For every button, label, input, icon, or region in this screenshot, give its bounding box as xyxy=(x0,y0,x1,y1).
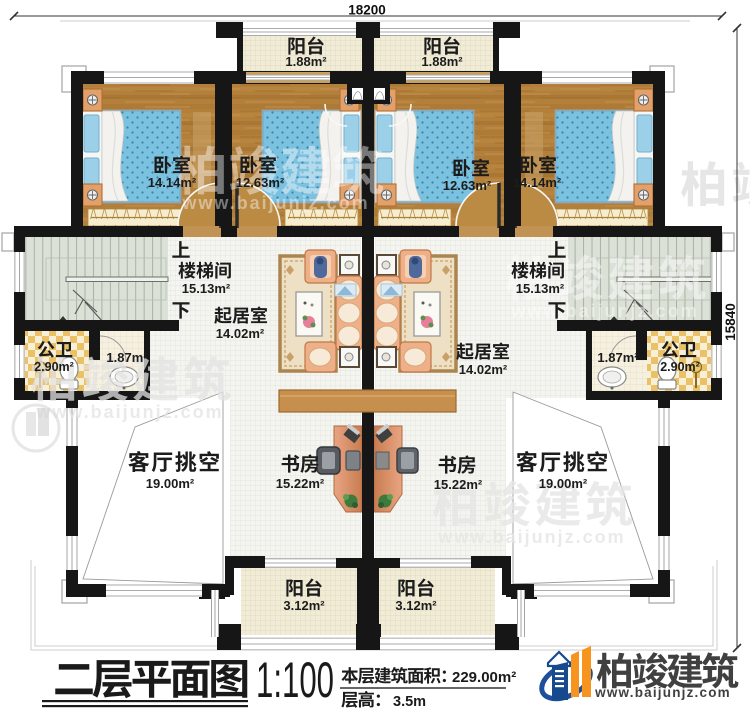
svg-text:1.87m²: 1.87m² xyxy=(106,350,148,365)
svg-text:14.02m²: 14.02m² xyxy=(459,362,508,377)
svg-text:12.63m²: 12.63m² xyxy=(236,175,285,190)
svg-text:3.5m: 3.5m xyxy=(393,694,426,710)
svg-text:1.88m²: 1.88m² xyxy=(285,54,327,69)
svg-text:www.baijunjz.com: www.baijunjz.com xyxy=(510,301,698,321)
svg-text:www.baijunjz.com: www.baijunjz.com xyxy=(594,685,731,700)
svg-text:14.02m²: 14.02m² xyxy=(216,326,265,341)
svg-text:14.14m²: 14.14m² xyxy=(148,175,197,190)
svg-text:3.12m²: 3.12m² xyxy=(283,598,325,613)
svg-text:www.baijunjz.com: www.baijunjz.com xyxy=(35,402,223,422)
svg-text:1:100: 1:100 xyxy=(256,652,334,708)
svg-text:14.14m²: 14.14m² xyxy=(513,175,562,190)
svg-text:18200: 18200 xyxy=(348,3,386,18)
svg-text:www.baijunjz.com: www.baijunjz.com xyxy=(437,527,625,547)
svg-text:19.00m²: 19.00m² xyxy=(146,476,195,491)
svg-text:229.00m²: 229.00m² xyxy=(452,669,516,686)
svg-text:1.87m²: 1.87m² xyxy=(597,350,639,365)
svg-text:3.12m²: 3.12m² xyxy=(395,598,437,613)
svg-text:15840: 15840 xyxy=(723,303,738,341)
svg-text:15.22m²: 15.22m² xyxy=(276,476,325,491)
svg-text:12.63m²: 12.63m² xyxy=(443,178,492,193)
svg-text:15.13m²: 15.13m² xyxy=(516,281,565,296)
svg-text:15.22m²: 15.22m² xyxy=(434,477,483,492)
svg-text:1.88m²: 1.88m² xyxy=(421,54,463,69)
svg-text:19.00m²: 19.00m² xyxy=(539,476,588,491)
svg-text:2.90m²: 2.90m² xyxy=(660,360,700,374)
svg-text:15.13m²: 15.13m² xyxy=(182,281,231,296)
svg-text:www.baijunjz.com: www.baijunjz.com xyxy=(181,193,369,213)
svg-text:2.90m²: 2.90m² xyxy=(34,360,74,374)
